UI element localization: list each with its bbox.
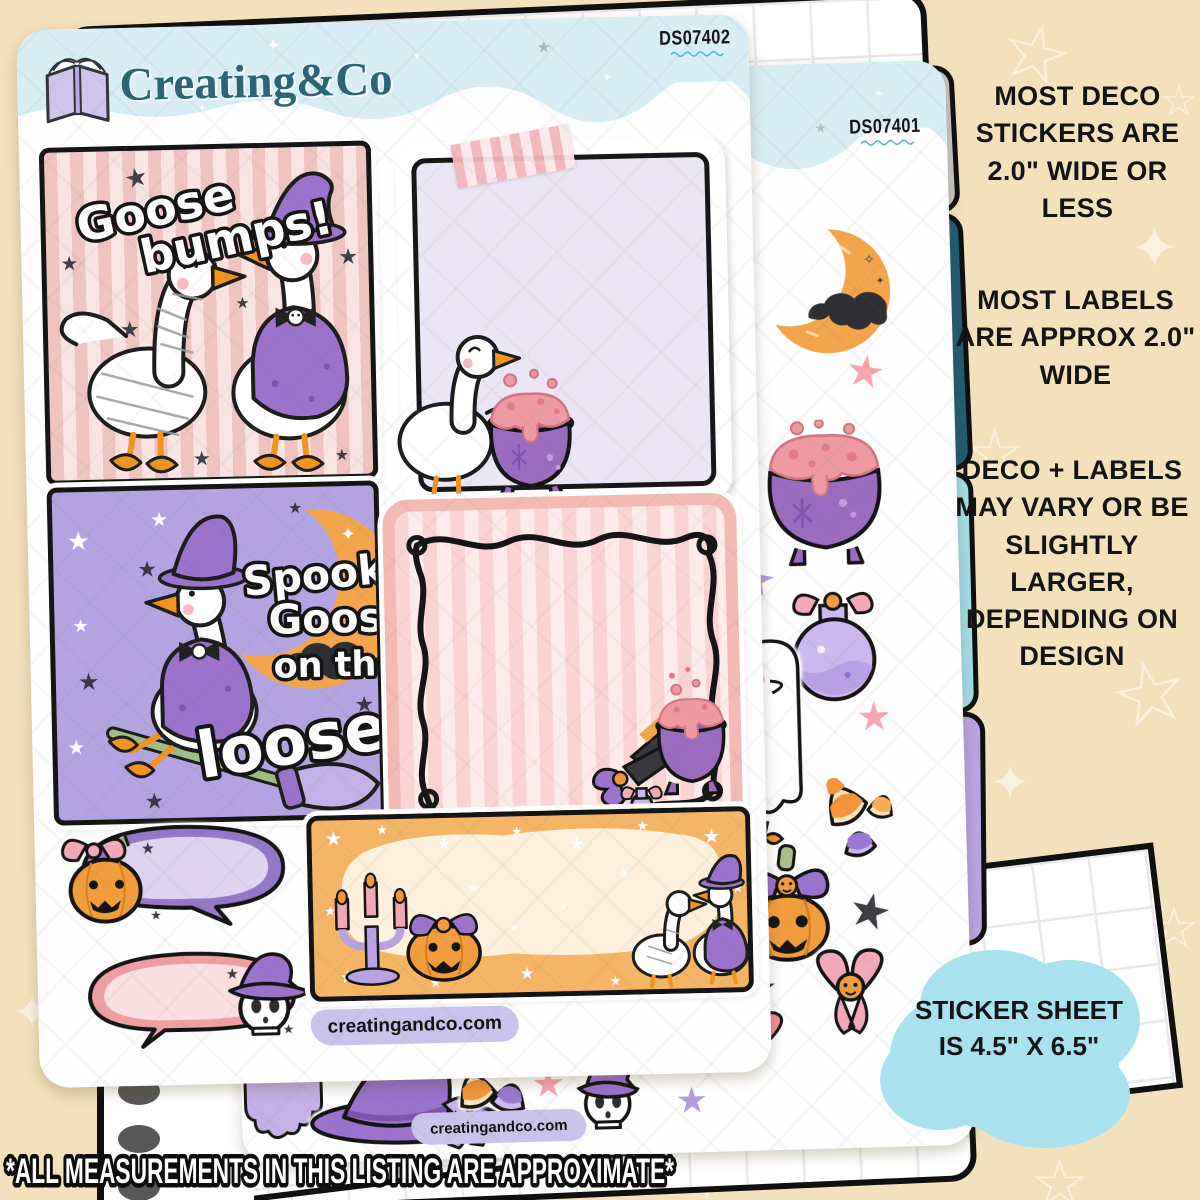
pink-star-sticker: ★ [842,348,887,397]
open-book-icon [37,52,119,128]
header-star: ✦ [602,73,611,84]
svg-text:★: ★ [120,318,140,343]
svg-text:★: ★ [78,668,100,696]
annotation-text: MOST DECO STICKERS ARE 2.0" WIDE OR LESS [976,81,1180,223]
purple-speech-bubble-sticker: ★ ★ [56,810,307,940]
svg-text:★: ★ [144,789,164,814]
svg-text:★: ★ [558,900,568,913]
svg-text:★: ★ [72,616,89,637]
svg-text:★: ★ [140,839,155,858]
header-star: ★ [536,40,551,56]
pink-star-sticker: ★ [855,697,892,738]
sheet-size-value: STICKER SHEET IS 4.5" X 6.5" [915,995,1123,1061]
squiggle-box-sticker [382,492,744,840]
disclaimer-banner: *ALL MEASUREMENTS IN THIS LISTING ARE AP… [2,1143,702,1199]
header-star: ✦ [266,38,280,54]
svg-text:★: ★ [376,823,388,838]
annotation-deco-size: MOST DECO STICKERS ARE 2.0" WIDE OR LESS [955,78,1200,227]
spooky-goose-art: ★ ★ ★ ★ ★ ★ ★ ★ ★ ★ ✦ ✧ [52,485,381,820]
annotation-text: DECO + LABELS MAY VARY OR BE SLIGHTLY LA… [955,455,1188,671]
sheet-code-text: DS07401 [849,115,921,139]
brand-text: Creating&Co [119,53,393,111]
sheet-code-text: DS07402 [659,26,731,50]
svg-text:★: ★ [283,1022,295,1037]
spooky-text-2: Goose [268,593,381,644]
goose-bumps-art: ★ ★ ★ ★ ★ ★ ★ ★ ★ ★ [44,146,373,481]
website-pill: creatingandco.com [411,1108,587,1145]
sheet-code: DS07401 [849,115,921,148]
svg-text:★: ★ [436,834,451,853]
annotation-text: MOST LABELS ARE APPROX 2.0" WIDE [956,285,1196,390]
svg-text:★: ★ [519,964,535,984]
product-listing-image: ☆ ✦ ☆ ✦ ☆ ☆ ✦ ☆ ☆ ✦ ✦ ☆ ✦ ★ ✦ DS07401 [0,0,1200,1200]
svg-text:★: ★ [150,507,168,531]
header-star: ✦ [412,49,422,61]
svg-text:★: ★ [225,965,239,983]
svg-text:★: ★ [324,904,336,919]
svg-text:★: ★ [67,735,85,759]
svg-text:★: ★ [511,824,522,838]
goose-bumps-sticker-box: ★ ★ ★ ★ ★ ★ ★ ★ ★ ★ [39,140,379,485]
svg-text:★: ★ [636,818,649,834]
note-box-sticker [395,135,733,508]
front-sticker-sheet: ✦ ★ ✦ ✦ ★ ✦ ★ ✦ Creating&Co DS07402 [16,14,772,1088]
code-underline-squiggle [860,138,921,148]
svg-text:★: ★ [288,498,303,517]
goose-cauldron-art [385,311,590,525]
sheet-code: DS07402 [659,26,731,59]
annotation-variance: DECO + LABELS MAY VARY OR BE SLIGHTLY LA… [942,452,1200,676]
svg-text:★: ★ [702,824,720,848]
header-star: ✦ [873,88,883,100]
svg-text:★: ★ [467,880,480,896]
svg-text:✧: ✧ [863,251,875,267]
annotation-label-size: MOST LABELS ARE APPROX 2.0" WIDE [948,282,1200,394]
sheet-size-text: STICKER SHEET IS 4.5" X 6.5" [910,992,1128,1065]
sheet-size-callout: STICKER SHEET IS 4.5" X 6.5" [890,950,1148,1148]
background-star-doodle: ✦ [1130,220,1179,278]
svg-text:★: ★ [193,446,211,470]
orange-label-sticker: ★★ ★★ ★★ ★★ ★★ ★★ ★★ ★★ ★★ ★★ [306,806,754,1002]
spooky-text-3: on the [273,644,381,687]
website-pill: creatingandco.com [310,1005,519,1046]
svg-text:★: ★ [137,557,157,582]
svg-text:★: ★ [150,908,162,923]
website-text: creatingandco.com [327,1013,502,1039]
svg-text:★: ★ [617,865,631,883]
disclaimer-text: *ALL MEASUREMENTS IN THIS LISTING ARE AP… [6,1152,674,1191]
svg-text:★: ★ [338,245,358,270]
svg-text:★: ★ [235,293,250,312]
background-star-doodle: ✦ [990,760,1030,808]
brand-name: Creating&Co [119,52,393,112]
pink-speech-bubble-sticker: ★ ★ [67,935,318,1059]
svg-text:★: ★ [508,920,520,935]
svg-text:★: ★ [66,527,90,558]
squiggle-border-art [382,492,744,840]
website-text: creatingandco.com [430,1116,568,1137]
crescent-moon-bat-sticker: ✧ ✦ [744,211,898,365]
svg-text:★: ★ [324,826,342,850]
code-underline-squiggle [670,49,731,58]
spooky-goose-sticker-box: ★ ★ ★ ★ ★ ★ ★ ★ ★ ★ ✦ ✧ [46,480,386,825]
svg-text:★: ★ [60,251,78,275]
svg-text:✦: ✦ [340,524,356,545]
background-star-doodle: ☆ [1030,1150,1089,1200]
svg-text:★: ★ [568,834,585,855]
purple-star-sticker: ★ [675,1083,708,1120]
orange-label-art: ★★ ★★ ★★ ★★ ★★ ★★ ★★ ★★ ★★ ★★ [306,806,754,1002]
svg-text:★: ★ [335,445,350,464]
svg-text:★: ★ [610,974,622,989]
svg-text:✦: ✦ [876,276,885,287]
black-star-sticker: ★ [844,883,896,939]
